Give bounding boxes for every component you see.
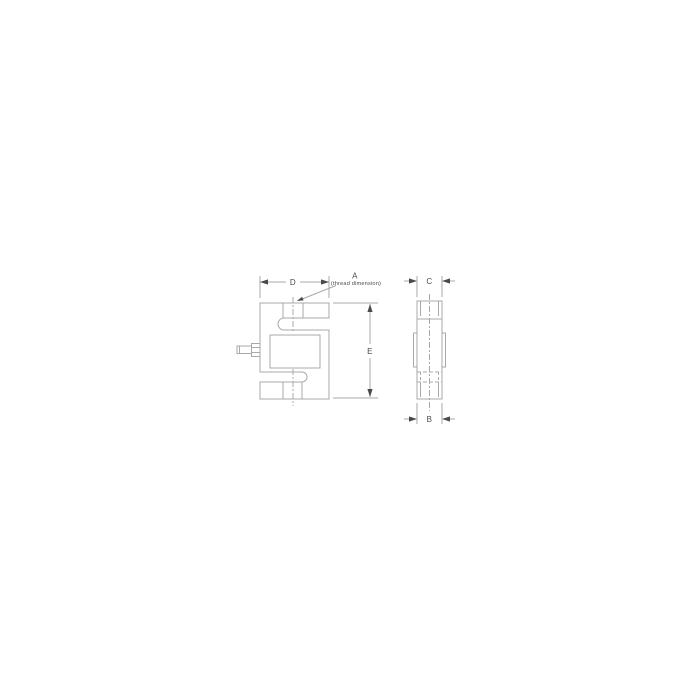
center-cavity bbox=[270, 335, 320, 368]
connector-nut-facets bbox=[252, 348, 261, 353]
dim-e-arrow-bottom bbox=[367, 389, 372, 397]
load-cell-dimension-drawing: D A (thread dimension) E C B bbox=[0, 0, 700, 700]
dim-e-label: E bbox=[367, 347, 373, 356]
drawing-canvas: D A (thread dimension) E C B bbox=[0, 0, 700, 700]
side-tab-right bbox=[442, 333, 446, 367]
dim-a-label: A bbox=[352, 272, 358, 281]
dim-a-leader-arrow bbox=[297, 297, 304, 301]
dim-b-arrow-right bbox=[442, 416, 450, 421]
dim-a-leader-line bbox=[299, 286, 337, 301]
dim-d-label: D bbox=[290, 278, 296, 287]
cable-connector bbox=[237, 344, 260, 357]
connector-nut bbox=[252, 344, 261, 357]
dim-b-arrow-left bbox=[409, 416, 417, 421]
front-view bbox=[237, 297, 329, 406]
dimension-lines bbox=[260, 276, 455, 424]
dim-b-label: B bbox=[427, 415, 433, 424]
side-view bbox=[414, 294, 446, 411]
dim-c-label: C bbox=[426, 277, 432, 286]
dim-d-arrow-right bbox=[321, 279, 329, 284]
dim-c-arrow-left bbox=[409, 278, 417, 283]
dimension-labels: D A (thread dimension) E C B bbox=[290, 272, 433, 424]
dim-e-arrow-top bbox=[367, 304, 372, 312]
side-tab-left bbox=[414, 333, 418, 367]
dim-d-arrow-left bbox=[260, 279, 268, 284]
dimension-arrowheads bbox=[260, 278, 450, 421]
dim-a-note: (thread dimension) bbox=[331, 281, 381, 287]
dim-c-arrow-right bbox=[442, 278, 450, 283]
